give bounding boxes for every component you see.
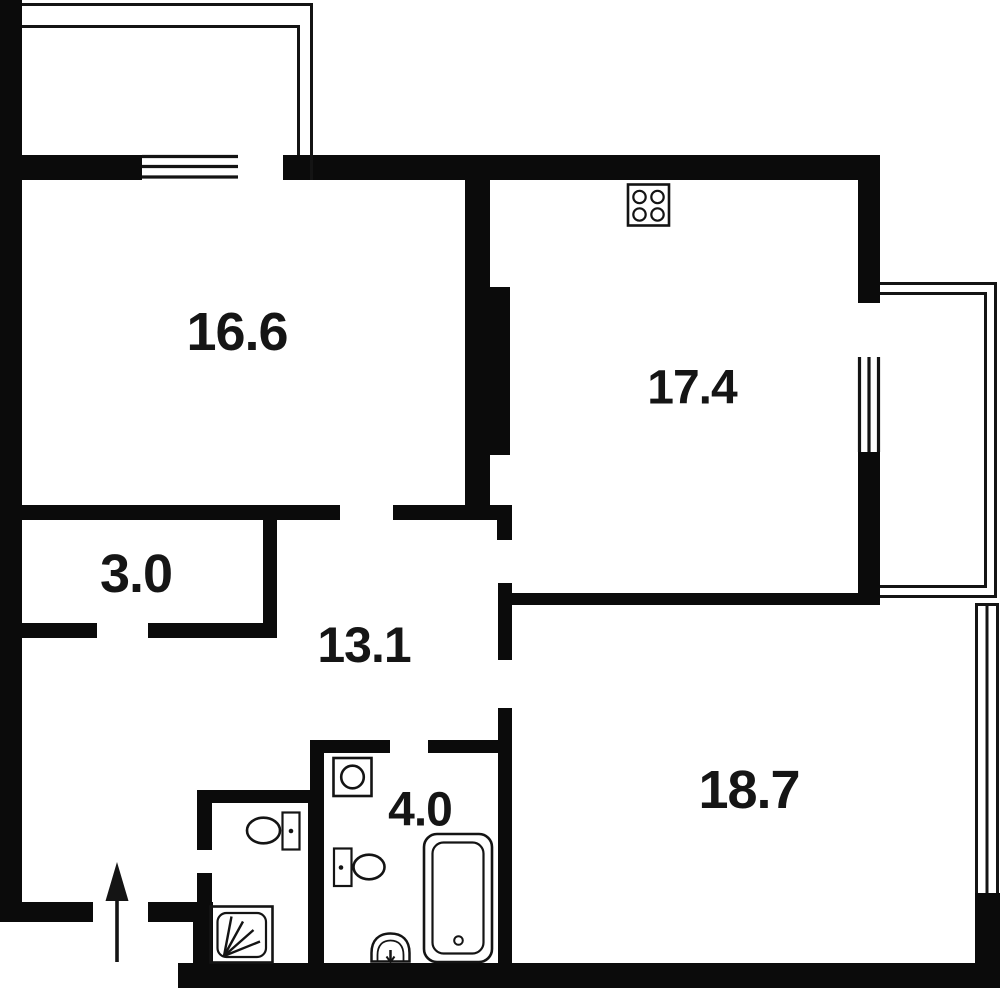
window: [860, 357, 879, 452]
room-area-label-storage: 3.0: [100, 543, 172, 605]
room-area-label-living-room: 16.6: [186, 301, 287, 363]
toilet-icon: [334, 849, 385, 887]
room-area-label-kitchen: 17.4: [647, 361, 736, 416]
floor-plan: 16.6 17.4 3.0 13.1 4.0 18.7: [0, 0, 1000, 988]
shower-tray-icon: [211, 907, 273, 963]
sink-icon: [372, 934, 410, 963]
washing-machine-icon: [334, 758, 372, 796]
room-area-label-hallway: 13.1: [317, 616, 410, 674]
room-area-label-bedroom: 18.7: [698, 759, 799, 821]
toilet-icon: [247, 813, 300, 850]
window: [975, 603, 999, 893]
stove-icon: [628, 185, 669, 226]
balcony-outline: [880, 284, 996, 597]
balcony-outline: [22, 5, 312, 181]
window: [142, 157, 238, 178]
room-area-label-bathroom: 4.0: [388, 783, 452, 838]
fixtures-layer: [0, 0, 1000, 988]
entrance-arrow-icon: [106, 862, 129, 962]
bathtub-icon: [424, 834, 492, 962]
